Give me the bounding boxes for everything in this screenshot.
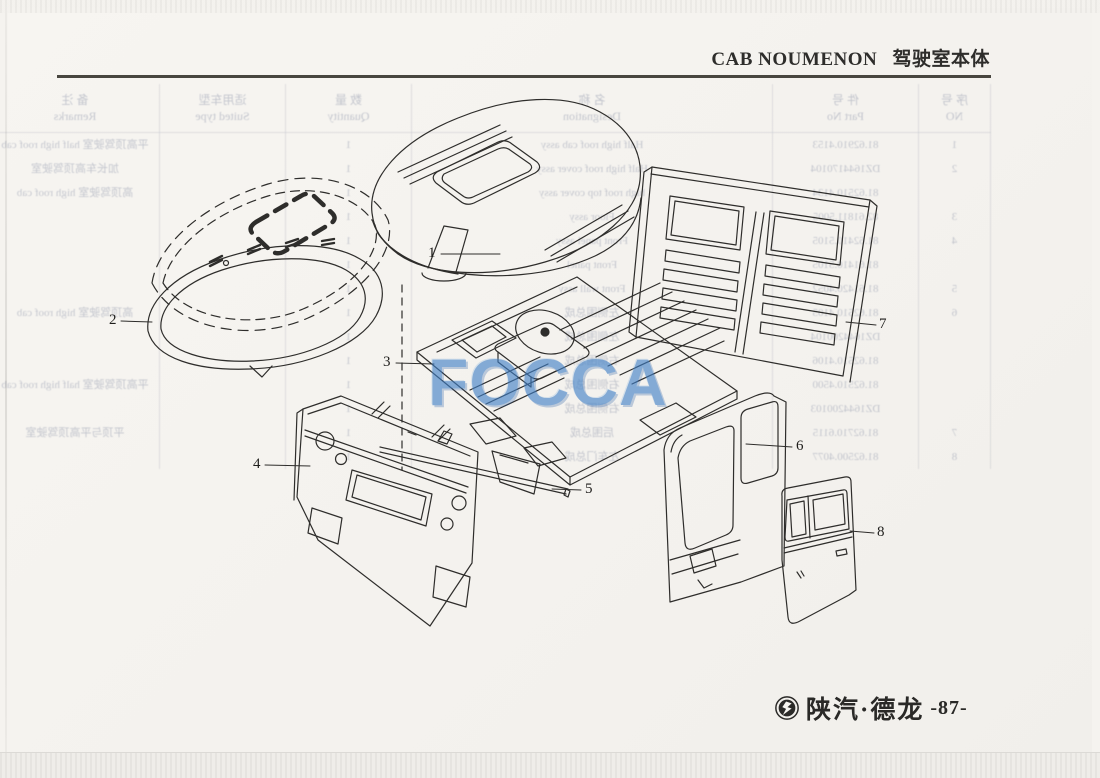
brand-name: 陕汽·德龙 <box>806 690 924 726</box>
page-number: -87- <box>930 697 967 720</box>
callout-5: 5 <box>585 481 593 498</box>
callout-7: 7 <box>879 316 887 333</box>
shaanxi-auto-logo-icon <box>774 695 800 721</box>
footer: 陕汽·德龙 -87- <box>774 690 968 726</box>
part-3-floor-drawing <box>402 277 737 485</box>
part-7-rear-wall-drawing <box>629 167 877 382</box>
callout-6: 6 <box>796 438 804 455</box>
scanned-catalog-page: 序 号NO件 号Part No名 称Designation数 量Quantity… <box>0 0 1100 778</box>
part-4-front-wall-drawing <box>294 396 478 626</box>
callout-4: 4 <box>253 456 261 473</box>
part-8-door-drawing <box>782 477 856 623</box>
part-1-roof-cap-drawing <box>372 99 641 281</box>
part-2-roof-panel-drawing <box>148 178 390 377</box>
callout-1: 1 <box>428 245 436 262</box>
callout-3: 3 <box>383 354 391 371</box>
exploded-diagram <box>0 0 1100 778</box>
callout-2: 2 <box>109 312 117 329</box>
callout-8: 8 <box>877 524 885 541</box>
